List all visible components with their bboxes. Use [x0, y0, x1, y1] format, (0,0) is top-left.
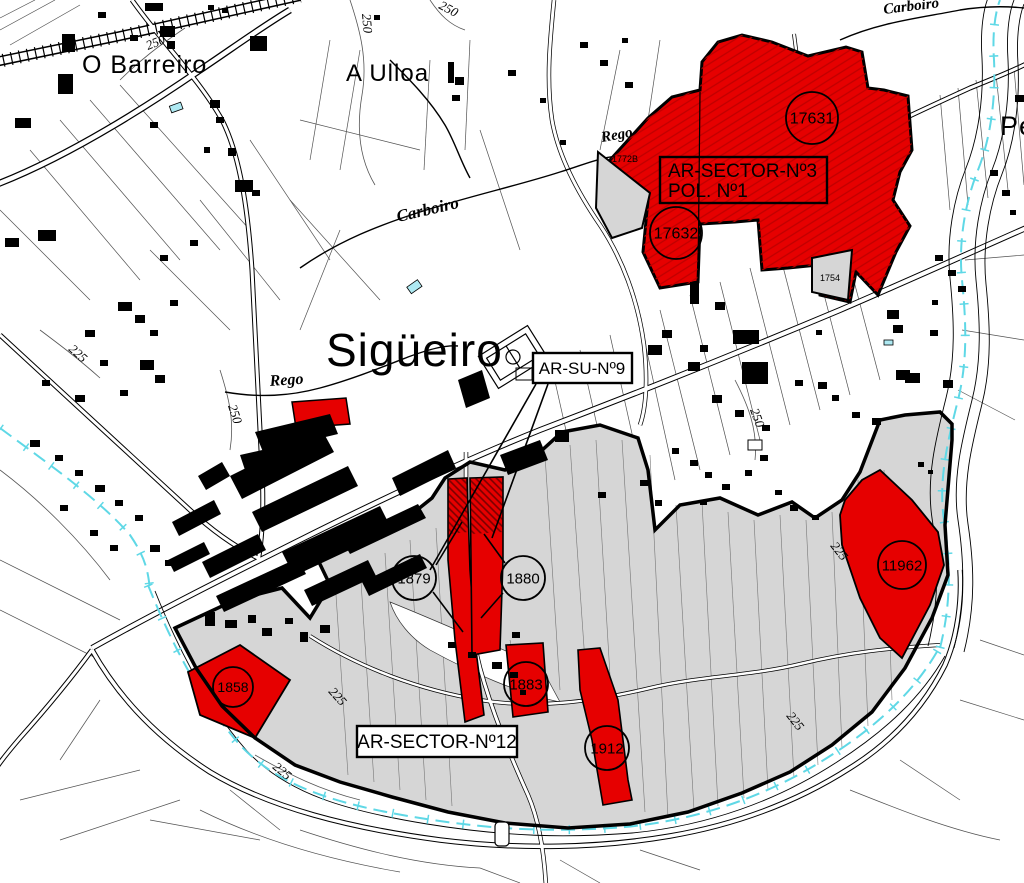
building-cluster-nw [5, 3, 267, 566]
pool-icon [169, 102, 183, 113]
parcel-number-1880: 1880 [506, 570, 539, 587]
building-hollow-3 [495, 822, 509, 846]
pool-icon [407, 280, 422, 294]
su9-label-box[interactable]: AR-SU-Nº9 [533, 353, 632, 383]
contour-label-225: 225 [66, 341, 91, 366]
parcel-number-11962: 11962 [882, 557, 923, 574]
parcel-number-17631: 17631 [790, 111, 835, 128]
strip-hatch-1879 [448, 478, 468, 534]
contour-label-250: 250 [437, 0, 462, 20]
sector12-label: AR-SECTOR-Nº12 [357, 732, 517, 753]
contour-label-250: 250 [225, 402, 245, 426]
pool-icon [884, 340, 893, 345]
road-west [0, 335, 262, 560]
sector3-label-line1: AR-SECTOR-Nº3 [668, 161, 817, 182]
stream-carboiro [300, 156, 632, 268]
parcel-number-17632: 17632 [654, 226, 699, 243]
parcel-label-1754: 1754 [820, 273, 840, 283]
parcel-number-1883: 1883 [509, 676, 542, 693]
planning-map-svg: 17631 17632 11962 1879 1880 1858 1883 1 [0, 0, 1024, 883]
su9-label: AR-SU-Nº9 [539, 359, 626, 378]
label-o-barreiro: O Barreiro [82, 51, 207, 79]
building-hollow-1 [516, 368, 532, 380]
label-rego: Rego [268, 371, 304, 390]
parcel-label-1772b: 1772B [612, 154, 638, 164]
label-a-ulloa: A Ulloa [346, 60, 429, 87]
parcel-number-1912: 1912 [590, 740, 623, 757]
label-sigueiro: Sigüeiro [326, 324, 503, 376]
map-canvas: 17631 17632 11962 1879 1880 1858 1883 1 [0, 0, 1024, 883]
label-pe: Pe [1000, 111, 1024, 141]
strip-hatch-1880 [470, 477, 503, 534]
parcel-number-1879: 1879 [397, 570, 430, 587]
label-carboiro: Carboiro [395, 193, 461, 226]
contour-label-250: 250 [359, 13, 376, 34]
sector3-label-line2: POL. Nº1 [668, 181, 748, 202]
sector12-label-box[interactable]: AR-SECTOR-Nº12 [357, 726, 517, 757]
parcel-number-1858: 1858 [217, 679, 248, 695]
building-hollow-2 [748, 440, 762, 450]
